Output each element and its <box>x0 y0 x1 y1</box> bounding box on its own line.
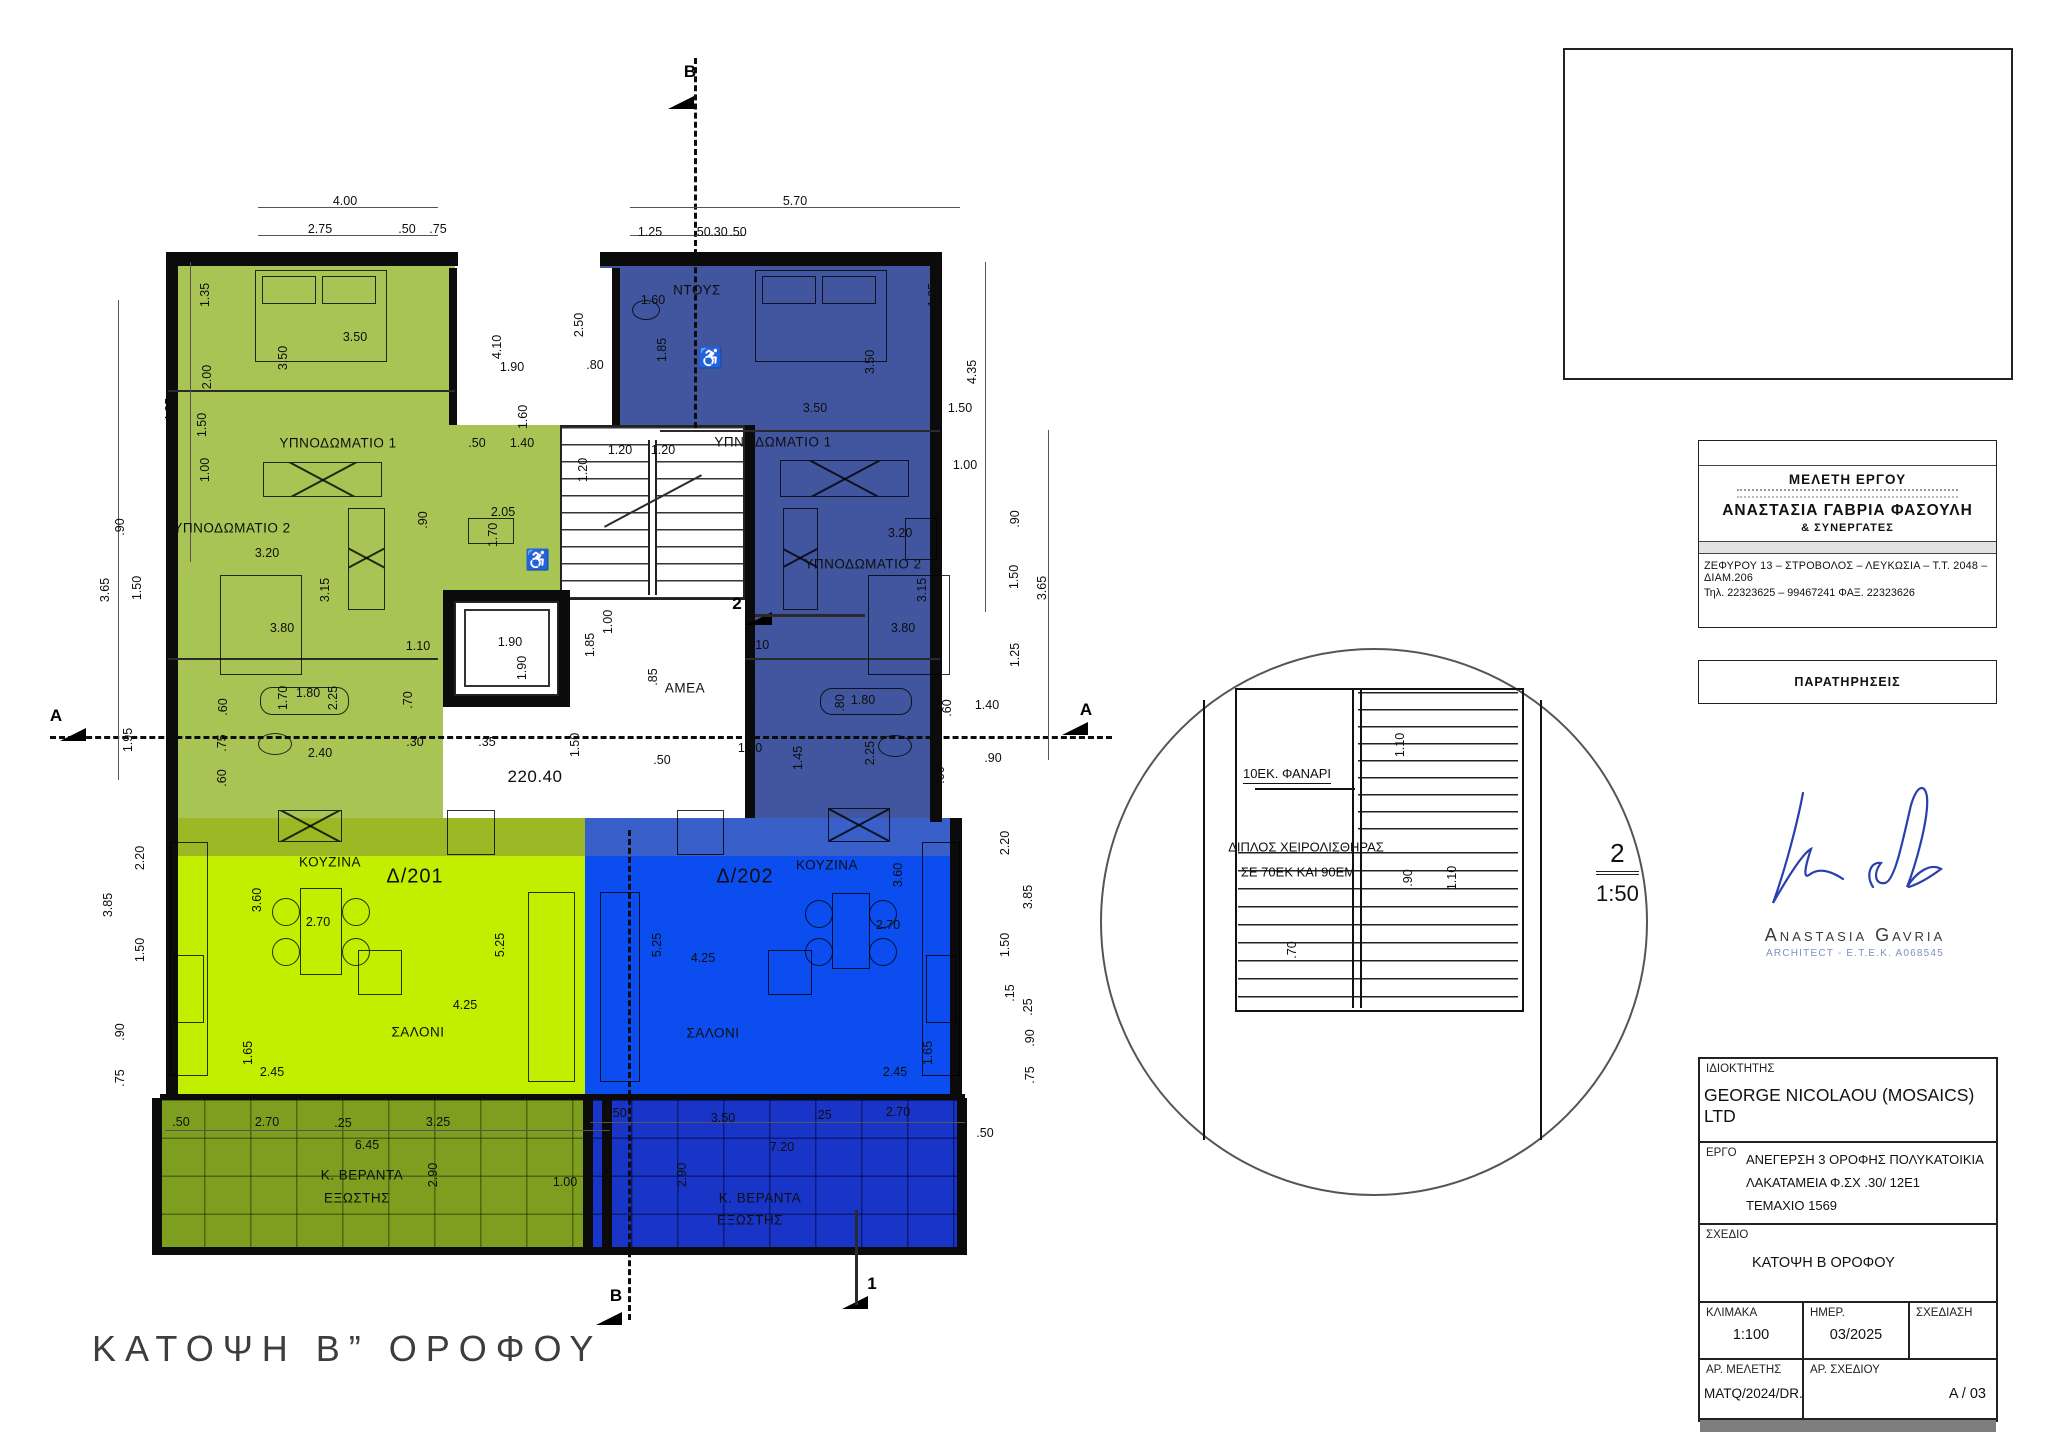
dimension-label: 2.25 <box>327 686 340 710</box>
dimension-label: 3.15 <box>916 578 929 602</box>
detail-number: 2 <box>1596 838 1639 875</box>
dimension-label: 3.50 <box>864 350 877 374</box>
dimension-label: .75 <box>932 734 945 751</box>
dimension-line <box>985 262 986 612</box>
dimension-label: .75 <box>114 1069 127 1086</box>
dimension-label: .75 <box>429 223 446 236</box>
dimension-label: 1.25 <box>1009 643 1022 667</box>
dimension-label: 4.35 <box>966 360 979 384</box>
project-line: ΤΕΜΑΧΙΟ 1569 <box>1746 1195 1996 1218</box>
dimension-label: 3.60 <box>251 888 264 912</box>
dimension-label: 1.10 <box>745 639 769 652</box>
upper-floor-overhang-blue <box>585 818 960 856</box>
chair-icon <box>869 938 897 966</box>
dimension-label: 1.50 <box>948 402 972 415</box>
dimension-label: 2.05 <box>491 506 515 519</box>
detail-dimension-label: 1.10 <box>1446 866 1459 890</box>
section-line-B-bottom <box>628 830 631 1320</box>
dimension-label: 3.80 <box>891 622 915 635</box>
dimension-label: .70 <box>744 688 757 705</box>
title-block-footer-bar <box>1700 1420 1996 1432</box>
section-marker-label: 2 <box>732 594 741 614</box>
notes-block: ΠΑΡΑΤΗΡΗΣΕΙΣ <box>1698 660 1997 704</box>
dimension-label: 2.25 <box>864 741 877 765</box>
dimension-label: 2.75 <box>308 223 332 236</box>
dining-table-icon <box>300 888 342 975</box>
project-line: ΑΝΕΓΕΡΣΗ 3 ΟΡΟΦΗΣ ΠΟΛΥΚΑΤΟΙΚΙΑ <box>1746 1149 1996 1172</box>
dimension-label: 1.80 <box>851 694 875 707</box>
dimension-label: 1.45 <box>792 746 805 770</box>
dimension-label: .50 <box>976 1127 993 1140</box>
dimension-label: 1.20 <box>651 444 675 457</box>
dimension-label: .80 <box>586 359 603 372</box>
dimension-label: .50 <box>172 1116 189 1129</box>
sink-icon <box>174 955 204 1023</box>
detail-upper-flight <box>1358 692 1518 832</box>
dimension-label: .75 <box>216 734 229 751</box>
dimension-label: .90 <box>114 518 127 535</box>
dimension-label: 2.00 <box>201 365 214 389</box>
architect-name: ΑΝΑΣΤΑΣΙΑ ΓΑΒΡΙΑ ΦΑΣΟΥΛΗ <box>1699 502 1996 520</box>
dimension-label: 3.85 <box>1022 885 1035 909</box>
dimension-label: 3.15 <box>319 578 332 602</box>
architect-phone: Τηλ. 22323625 – 99467241 ΦΑΞ. 22323626 <box>1699 585 1996 601</box>
owner-label: ΙΔΙΟΚΤΗΤΗΣ <box>1700 1059 1996 1075</box>
detail-dimension-label: 1.10 <box>1394 733 1407 757</box>
divider-band <box>1699 541 1996 554</box>
dimension-label: 3.20 <box>888 527 912 540</box>
room-label: ΣΑΛΟΝΙ <box>686 1026 739 1041</box>
room-label: ΥΠΝΟΔΩΜΑΤΙΟ 2 <box>173 521 290 536</box>
pillow-icon <box>262 276 316 304</box>
dimension-label: .25 <box>334 1117 351 1130</box>
section-leader <box>755 614 865 617</box>
dimension-label: 1.70 <box>487 523 500 547</box>
dimension-label: 1.50 <box>134 938 147 962</box>
pillow-icon <box>762 276 816 304</box>
armchair-icon <box>358 950 402 995</box>
section-marker-label: B <box>684 62 696 82</box>
dimension-label: 4.10 <box>491 335 504 359</box>
drawing-sheet: 4.002.75.50.755.701.25.50.30.501.352.001… <box>0 0 2048 1436</box>
room-label: ΕΞΩΣΤΗΣ <box>717 1213 783 1228</box>
dimension-label: 1.00 <box>553 1176 577 1189</box>
section-line-B-top <box>694 58 697 428</box>
room-label: ΥΠΝΟΔΩΜΑΤΙΟ 1 <box>279 436 396 451</box>
study-number-label: ΑΡ. ΜΕΛΕΤΗΣ <box>1700 1360 1802 1376</box>
dimension-label: 3.65 <box>99 578 112 602</box>
detail-cut-line <box>1540 700 1542 1140</box>
pillow-icon <box>322 276 376 304</box>
dimension-label: 1.10 <box>406 640 430 653</box>
section-flag <box>60 728 86 741</box>
dimension-label: 2.00 <box>929 378 942 402</box>
sink-icon <box>926 955 956 1023</box>
wall-segment <box>449 268 457 425</box>
dimension-label: 1.60 <box>517 405 530 429</box>
wall-segment <box>160 1094 612 1100</box>
wall-segment <box>152 1098 162 1255</box>
sofa-icon <box>528 892 575 1082</box>
partition-line <box>168 658 438 660</box>
room-label: ΣΑΛΟΝΙ <box>391 1025 444 1040</box>
detail-leader <box>1255 788 1355 790</box>
dimension-label: 1.20 <box>608 444 632 457</box>
wall-segment <box>152 1247 612 1255</box>
architect-block-header: ΜΕΛΕΤΗ ΕΡΓΟΥ <box>1699 472 1996 487</box>
date-value: 03/2025 <box>1804 1319 1908 1343</box>
dimension-label: 2.45 <box>883 1066 907 1079</box>
partition-line <box>168 390 455 392</box>
wardrobe-icon <box>348 508 385 610</box>
section-marker-label: B <box>610 1286 622 1306</box>
architect-address: ΖΕΦΥΡΟΥ 13 – ΣΤΡΟΒΟΛΟΣ – ΛΕΥΚΩΣΙΑ – Τ.Τ.… <box>1699 554 1996 585</box>
dimension-line <box>590 1122 965 1123</box>
dimension-label: 3.50 <box>711 1112 735 1125</box>
detail-note-lantern: 10ΕΚ. ΦΑΝΑΡΙ <box>1243 766 1331 784</box>
dimension-label: 1.80 <box>296 687 320 700</box>
room-label: Κ. ΒΕΡΑΝΤΑ <box>321 1168 404 1183</box>
dimension-label: 1.85 <box>656 338 669 362</box>
dimension-label: 1.10 <box>738 742 762 755</box>
dimension-line <box>118 300 119 780</box>
detail-dimension-label: .90 <box>1402 869 1415 886</box>
sheet-number-label: ΑΡ. ΣΧΕΔΙΟΥ <box>1804 1360 1996 1376</box>
dimension-label: 1.40 <box>510 437 534 450</box>
drafting-label: ΣΧΕΔΙΑΣΗ <box>1910 1303 1996 1319</box>
section-flag <box>1062 722 1088 735</box>
dimension-label: .60 <box>941 699 954 716</box>
armchair-icon <box>447 810 495 855</box>
chair-icon <box>342 898 370 926</box>
section-marker-label: A <box>50 706 62 726</box>
dimension-label: 3.50 <box>277 346 290 370</box>
wall-segment <box>600 252 942 266</box>
dimension-label: 3.65 <box>1036 576 1049 600</box>
wardrobe-icon <box>263 462 382 497</box>
room-label: ΥΠΝΟΔΩΜΑΤΙΟ 2 <box>804 557 921 572</box>
section-flag <box>596 1312 622 1325</box>
dimension-label: 3.50 <box>343 331 367 344</box>
dimension-label: 4.00 <box>333 195 357 208</box>
sheet-number-value: A / 03 <box>1804 1376 1996 1402</box>
wall-segment <box>612 268 620 425</box>
dimension-label: .25 <box>814 1109 831 1122</box>
dimension-label: 2.45 <box>260 1066 284 1079</box>
dimension-label: 2.90 <box>427 1163 440 1187</box>
dimension-label: 5.70 <box>783 195 807 208</box>
dimension-label: 1.00 <box>602 610 615 634</box>
drawing-name: ΚΑΤΟΨΗ Β ΟΡΟΦΟΥ <box>1700 1241 1996 1271</box>
dimension-label: 6.45 <box>355 1139 379 1152</box>
entry-niche <box>455 268 618 425</box>
chair-icon <box>272 938 300 966</box>
scale-label: ΚΛΙΜΑΚΑ <box>1700 1303 1802 1319</box>
sofa-icon <box>600 892 640 1082</box>
room-label: ♿ <box>525 548 551 573</box>
dimension-label: .75 <box>1024 1066 1037 1083</box>
section-leader <box>855 1210 858 1305</box>
dimension-label: 1.90 <box>516 656 529 680</box>
detail-callout-label: 2 1:50 <box>1596 838 1639 907</box>
wall-segment <box>583 1247 967 1255</box>
room-label: Κ. ΒΕΡΑΝΤΑ <box>719 1191 802 1206</box>
dimension-label: 1.00 <box>953 459 977 472</box>
upper-floor-overhang-green <box>168 818 585 856</box>
dimension-label: 1.60 <box>641 294 665 307</box>
armchair-icon <box>768 950 812 995</box>
dimension-label: 2.20 <box>999 831 1012 855</box>
dimension-label: .90 <box>1009 510 1022 527</box>
dimension-label: 1.20 <box>577 458 590 482</box>
dimension-label: 4.25 <box>453 999 477 1012</box>
project-label: ΕΡΓΟ <box>1700 1143 1737 1159</box>
dimension-label: .50 <box>468 437 485 450</box>
dimension-label: 3.85 <box>102 893 115 917</box>
dimension-label: 4.25 <box>691 952 715 965</box>
room-label: ΑΜΕΑ <box>665 681 705 696</box>
dimension-label: .90 <box>1024 1029 1037 1046</box>
dimension-label: .50 <box>653 754 670 767</box>
dimension-label: .90 <box>167 694 180 711</box>
dimension-label: 2.70 <box>306 916 330 929</box>
dimension-label: 4.35 <box>164 398 177 422</box>
dimension-label: 2.70 <box>886 1106 910 1119</box>
dimension-label: .85 <box>647 668 660 685</box>
detail-dimension-label: .70 <box>1286 941 1299 958</box>
architect-signature-name: Anastasia Gavria <box>1725 925 1985 946</box>
pillow-icon <box>822 276 876 304</box>
chair-icon <box>272 898 300 926</box>
kitchen-unit-icon <box>828 808 890 842</box>
dimension-label: .90 <box>114 1023 127 1040</box>
dimension-label: 2.50 <box>573 313 586 337</box>
dimension-label: .15 <box>1004 984 1017 1001</box>
dimension-label: 1.95 <box>122 728 135 752</box>
dimension-label: 2.90 <box>676 1163 689 1187</box>
dimension-label: 1.50 <box>999 933 1012 957</box>
dimension-label: 5.25 <box>651 933 664 957</box>
dimension-label: 1.85 <box>584 633 597 657</box>
room-label: ♿ <box>698 346 724 371</box>
kitchen-unit-icon <box>278 810 342 842</box>
dimension-label: .50 <box>609 1107 626 1120</box>
dimension-label: 3.60 <box>892 863 905 887</box>
partition-line <box>660 430 940 432</box>
dimension-label: .60 <box>934 766 947 783</box>
dimension-label: 2.70 <box>255 1116 279 1129</box>
architect-partners: & ΣΥΝΕΡΓΑΤΕΣ <box>1699 522 1996 534</box>
project-description: ΑΝΕΓΕΡΣΗ 3 ΟΡΟΦΗΣ ΠΟΛΥΚΑΤΟΙΚΙΑΛΑΚΑΤΑΜΕΙΑ… <box>1700 1143 1996 1217</box>
dimension-label: 3.20 <box>255 547 279 560</box>
dimension-label: 1.25 <box>638 226 662 239</box>
dimension-label: 3.80 <box>270 622 294 635</box>
dimension-label: 2.20 <box>134 846 147 870</box>
section-marker-label: A <box>1080 700 1092 720</box>
dimension-line <box>190 262 191 562</box>
dimension-label: 1.50 <box>569 733 582 757</box>
landing-below-lift <box>443 707 570 818</box>
chair-icon <box>805 900 833 928</box>
wardrobe-icon <box>780 460 909 497</box>
wall-segment <box>585 1094 965 1100</box>
dimension-label: .50 <box>729 226 746 239</box>
owner-name: GEORGE NICOLAOU (MOSAICS) LTD <box>1700 1075 1996 1127</box>
dimension-label: 2.40 <box>308 747 332 760</box>
dimension-label: .90 <box>984 752 1001 765</box>
dimension-label: .35 <box>478 736 495 749</box>
dimension-line <box>165 1130 610 1131</box>
section-marker-label: 1 <box>867 1274 876 1294</box>
dimension-label: 5.25 <box>494 933 507 957</box>
divider <box>1737 489 1958 498</box>
project-line: ΛΑΚΑΤΑΜΕΙΑ Φ.ΣΧ .30/ 12Ε1 <box>1746 1172 1996 1195</box>
room-label: Δ/202 <box>716 866 773 889</box>
room-label: Δ/201 <box>386 866 443 889</box>
dimension-label: 1.70 <box>277 686 290 710</box>
dimension-label: 3.25 <box>426 1116 450 1129</box>
architect-stamp-block: ΜΕΛΕΤΗ ΕΡΓΟΥ ΑΝΑΣΤΑΣΙΑ ΓΑΒΡΙΑ ΦΑΣΟΥΛΗ & … <box>1698 440 1997 628</box>
dimension-label: .30 <box>710 226 727 239</box>
dining-table-icon <box>832 893 870 969</box>
architect-signature-title: ARCHITECT - E.T.E.K. A068545 <box>1725 948 1985 959</box>
room-label: ΚΟΥΖΙΝΑ <box>299 855 361 870</box>
dimension-label: 1.90 <box>500 361 524 374</box>
detail-scale: 1:50 <box>1596 881 1639 907</box>
dimension-label: .80 <box>834 694 847 711</box>
room-label: ΚΟΥΖΙΝΑ <box>796 858 858 873</box>
dimension-label: 1.00 <box>199 458 212 482</box>
armchair-icon <box>677 810 724 855</box>
detail-note-handrail-1: ΔΙΠΛΟΣ ΧΕΙΡΟΛΙΣΘΗΡΑΣ <box>1228 840 1384 855</box>
dimension-label: .70 <box>402 691 415 708</box>
dimension-label: 1.50 <box>1008 565 1021 589</box>
scale-value: 1:100 <box>1700 1319 1802 1343</box>
stair-center-rail <box>648 440 657 595</box>
dimension-label: .50 <box>398 223 415 236</box>
section-flag <box>668 96 694 109</box>
dimension-label: 1.35 <box>927 283 940 307</box>
drawing-label: ΣΧΕΔΙΟ <box>1700 1225 1996 1241</box>
dimension-label: .60 <box>216 769 229 786</box>
wall-segment <box>168 252 458 266</box>
dimension-label: 3.50 <box>803 402 827 415</box>
dimension-label: .90 <box>417 511 430 528</box>
room-label: ΕΞΩΣΤΗΣ <box>324 1191 390 1206</box>
signature-area: Anastasia Gavria ARCHITECT - E.T.E.K. A0… <box>1725 775 1985 959</box>
dimension-label: 1.65 <box>242 1041 255 1065</box>
revision-box <box>1563 48 2013 380</box>
signature-icon <box>1745 775 1965 925</box>
drawing-title: ΚΑΤΟΨΗ Β” ΟΡΟΦΟΥ <box>92 1328 602 1370</box>
study-number-value: MATQ/2024/DR. <box>1700 1376 1802 1401</box>
room-label: ΝΤΟΥΣ <box>673 283 721 298</box>
drafting-value <box>1910 1319 1996 1327</box>
room-label: 220.40 <box>508 767 563 787</box>
dimension-label: .60 <box>217 698 230 715</box>
dimension-label: .30 <box>406 736 423 749</box>
dimension-label: .50 <box>693 226 710 239</box>
dimension-label: 1.65 <box>922 1041 935 1065</box>
dimension-label: 7.20 <box>770 1141 794 1154</box>
dimension-label: 1.50 <box>196 413 209 437</box>
title-block: ΙΔΙΟΚΤΗΤΗΣ GEORGE NICOLAOU (MOSAICS) LTD… <box>1698 1057 1998 1422</box>
dimension-label: 1.40 <box>975 699 999 712</box>
dimension-label: 1.90 <box>498 636 522 649</box>
dimension-label: 1.50 <box>131 576 144 600</box>
dimension-label: .25 <box>1022 998 1035 1015</box>
notes-header: ΠΑΡΑΤΗΡΗΣΕΙΣ <box>1794 675 1900 689</box>
dimension-label: 2.70 <box>876 919 900 932</box>
detail-cut-line <box>1203 700 1205 1140</box>
dimension-label: 1.35 <box>199 283 212 307</box>
detail-note-handrail-2: ΣΕ 70ΕΚ ΚΑΙ 90ΕΜ <box>1241 865 1355 880</box>
room-label: ΥΠΝΟΔΩΜΑΤΙΟ 1 <box>714 435 831 450</box>
date-label: ΗΜΕΡ. <box>1804 1303 1908 1319</box>
